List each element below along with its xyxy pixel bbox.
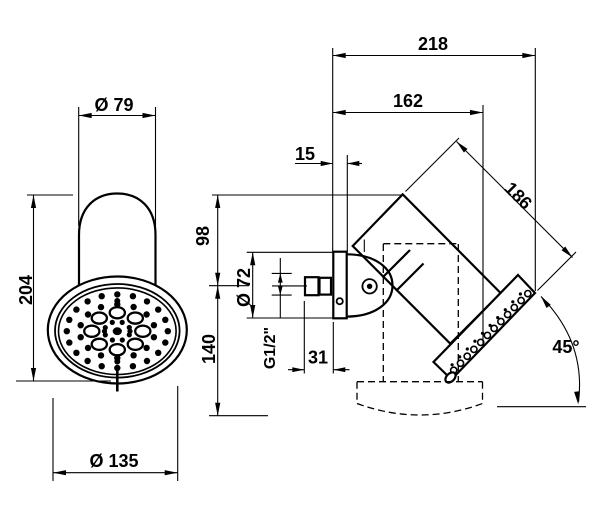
dimension-label-135: Ø 135 [89,451,138,471]
dimension-15: 15 [295,144,362,252]
dimension-label-45: 45° [552,337,579,357]
technical-drawing-page: Ø 79 204 Ø 135 [0,0,604,528]
pivot-axis-center [367,284,372,289]
dimension-top-diameter: Ø 79 [79,95,156,226]
thread-connector-inner [320,278,332,295]
technical-drawing: Ø 79 204 Ø 135 [0,0,604,528]
dimension-label-thread: G1/2" [262,327,279,369]
dimension-label-98: 98 [193,226,213,246]
front-view: Ø 79 204 Ø 135 [16,95,187,481]
dimension-label-15: 15 [295,144,315,164]
dimension-total-height: 204 [16,195,111,381]
dimension-label-204: 204 [16,275,36,305]
side-view: 218 162 15 98 [193,34,586,416]
thread-connector-outer [305,277,319,295]
wall-plate [333,252,346,319]
dimension-label-140: 140 [199,334,219,364]
dimension-thread: G1/2" [262,258,292,369]
dimension-label-186: 186 [501,178,536,213]
nozzle-pattern [64,291,171,371]
dimension-label-218: 218 [418,34,448,54]
dimension-face-diameter: Ø 135 [53,386,178,481]
dimension-label-31: 31 [308,348,328,368]
front-body-outline [79,194,156,286]
dimension-label-162: 162 [393,91,423,111]
dimension-label-72: Ø 72 [234,268,254,307]
dimension-label-79: Ø 79 [94,95,133,115]
